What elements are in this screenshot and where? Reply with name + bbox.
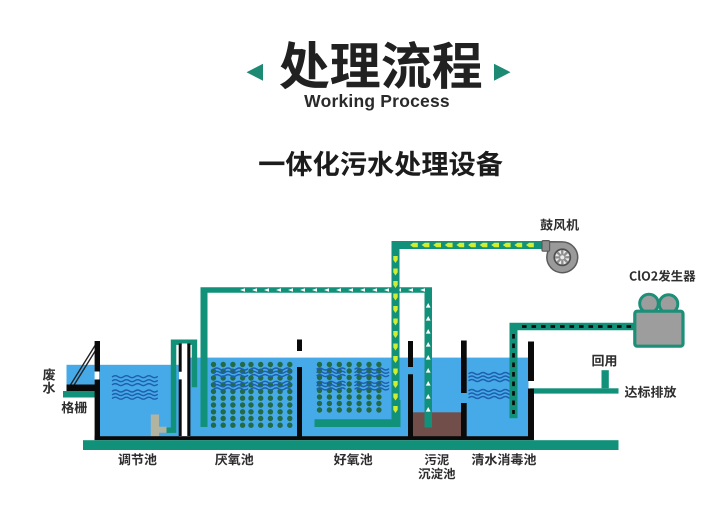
svg-text:Working Process: Working Process xyxy=(304,91,450,111)
